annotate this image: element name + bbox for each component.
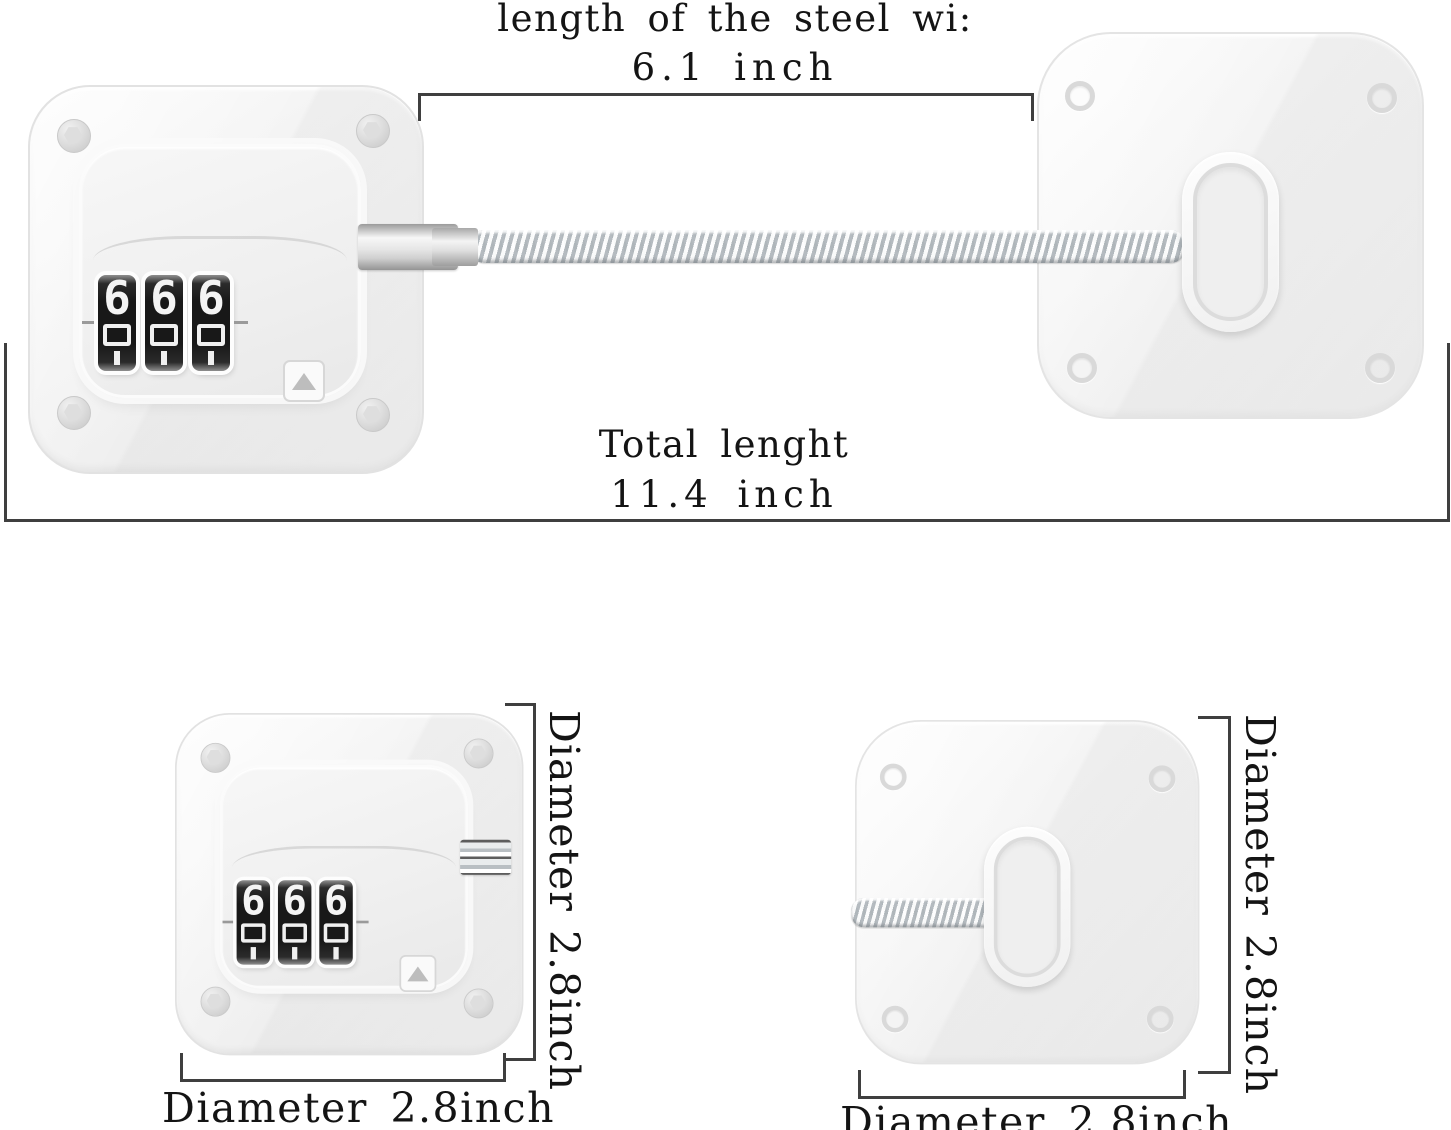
screw-icon xyxy=(464,988,494,1018)
lock-bottom-diameter-value: Diameter 2.8inch xyxy=(162,1084,555,1130)
dial-partial-digit-icon xyxy=(333,947,338,959)
dial-digit: 6 xyxy=(324,883,348,918)
screw-hole-icon xyxy=(1067,353,1097,383)
release-button-inner xyxy=(1193,163,1268,321)
dial-partial-digit-icon xyxy=(251,947,256,959)
dial-partial-digit-icon xyxy=(103,324,131,346)
combination-dials: 6 6 6 xyxy=(237,880,355,966)
dial-axle-icon xyxy=(356,921,368,924)
pad-side-diameter-label: Diameter 2.8inch xyxy=(1236,714,1284,1095)
dial-partial-digit-icon xyxy=(161,351,167,365)
dial-axle-icon xyxy=(234,321,248,324)
combination-lock-body: 6 6 6 xyxy=(175,713,523,1055)
screw-icon xyxy=(356,398,390,432)
steel-cable xyxy=(470,230,1185,263)
screw-icon xyxy=(57,396,91,430)
screw-hole-icon xyxy=(1065,81,1095,111)
dial-digit: 6 xyxy=(241,883,265,918)
pad-bottom-diameter-label: Diameter 2.8inch xyxy=(840,1098,1200,1130)
combination-dials: 6 6 6 xyxy=(98,275,232,373)
combination-dial: 6 xyxy=(278,880,311,964)
screw-hole-icon xyxy=(1149,765,1176,792)
screw-icon xyxy=(201,987,231,1017)
screw-icon xyxy=(57,119,91,153)
combination-dial: 6 xyxy=(237,880,270,964)
combination-dial: 6 xyxy=(192,275,230,371)
release-button-inner xyxy=(994,837,1061,978)
pad-side-bracket xyxy=(1198,716,1231,1074)
release-button xyxy=(984,827,1070,987)
dial-partial-digit-icon xyxy=(208,351,214,365)
dial-partial-digit-icon xyxy=(114,351,120,365)
steel-cable xyxy=(851,898,1001,927)
screw-hole-icon xyxy=(880,764,907,791)
lock-bottom-bracket xyxy=(180,1053,506,1082)
lock-face-panel: 6 6 6 xyxy=(220,765,468,989)
release-button xyxy=(1182,152,1279,332)
screw-hole-icon xyxy=(1367,83,1397,113)
dial-digit: 6 xyxy=(150,278,178,318)
screw-icon xyxy=(201,743,231,773)
pad-bottom-diameter-value: Diameter 2.8inch xyxy=(840,1098,1233,1130)
wire-length-bracket xyxy=(418,93,1034,121)
triangle-indicator-icon xyxy=(399,955,436,992)
dial-digit: 6 xyxy=(103,278,131,318)
screw-hole-icon xyxy=(882,1006,909,1033)
combination-dial: 6 xyxy=(98,275,136,371)
anchor-pad-body xyxy=(1037,32,1424,419)
dial-partial-digit-icon xyxy=(197,324,225,346)
screw-icon xyxy=(356,114,390,148)
wire-length-annotation: length of the steel wi: 6.1 inch xyxy=(420,0,1050,92)
wire-length-label: length of the steel wi: xyxy=(420,0,1050,43)
combination-dial: 6 xyxy=(145,275,183,371)
dial-partial-digit-icon xyxy=(324,923,349,942)
cable-stub xyxy=(460,840,511,875)
lock-bottom-diameter-label: Diameter 2.8inch xyxy=(162,1084,522,1130)
triangle-indicator-icon xyxy=(283,360,325,402)
triangle-icon xyxy=(407,966,428,981)
lock-face-panel: 6 6 6 xyxy=(79,144,361,398)
cable-ferrule-tip xyxy=(432,228,478,266)
dial-partial-digit-icon xyxy=(150,324,178,346)
product-dimension-diagram: length of the steel wi: 6.1 inch Total l… xyxy=(0,0,1451,1130)
combination-dial: 6 xyxy=(319,880,352,964)
screw-hole-icon xyxy=(1365,353,1395,383)
triangle-icon xyxy=(292,373,316,390)
dial-axle-icon xyxy=(82,321,96,324)
dial-partial-digit-icon xyxy=(292,947,297,959)
lock-side-diameter-label: Diameter 2.8inch xyxy=(540,710,588,1091)
dial-axle-icon xyxy=(223,921,235,924)
screw-icon xyxy=(464,739,494,769)
combination-lock-body: 6 6 6 xyxy=(28,85,424,474)
lock-side-bracket xyxy=(505,703,536,1061)
dial-partial-digit-icon xyxy=(282,923,307,942)
dial-digit: 6 xyxy=(197,278,225,318)
dial-partial-digit-icon xyxy=(241,923,266,942)
pad-bottom-bracket xyxy=(858,1070,1186,1099)
dial-digit: 6 xyxy=(282,883,306,918)
anchor-pad-body xyxy=(855,720,1199,1064)
screw-hole-icon xyxy=(1147,1006,1174,1033)
wire-length-value: 6.1 inch xyxy=(420,43,1050,92)
